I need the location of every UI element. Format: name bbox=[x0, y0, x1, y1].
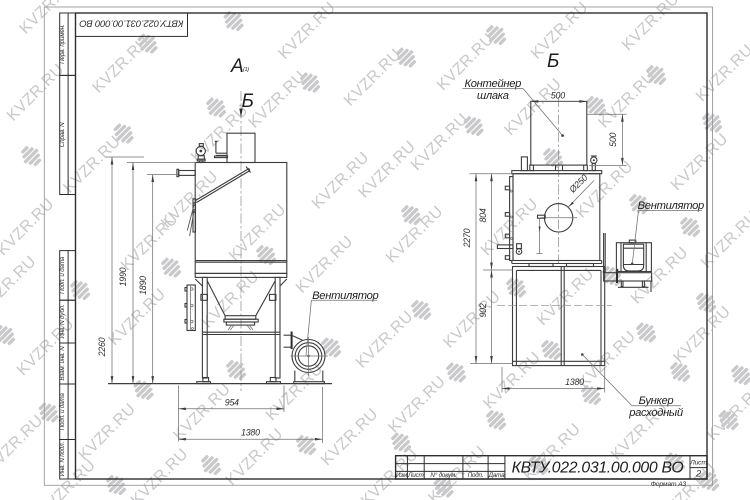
svg-text:N° докум.: N° докум. bbox=[430, 471, 456, 479]
svg-text:500: 500 bbox=[551, 90, 565, 100]
svg-text:902: 902 bbox=[478, 303, 488, 317]
svg-text:804: 804 bbox=[478, 208, 488, 222]
svg-text:2260: 2260 bbox=[97, 337, 107, 357]
svg-text:500: 500 bbox=[608, 132, 618, 146]
svg-text:1380: 1380 bbox=[565, 377, 584, 387]
svg-text:Инв. N подл.: Инв. N подл. bbox=[58, 442, 66, 476]
svg-text:Перв. примен.: Перв. примен. bbox=[59, 25, 66, 64]
svg-text:Лист: Лист bbox=[689, 460, 707, 467]
svg-text:2270: 2270 bbox=[462, 228, 472, 248]
svg-text:шлака: шлака bbox=[477, 90, 509, 102]
svg-text:Дата: Дата bbox=[488, 472, 506, 479]
svg-text:Лист: Лист bbox=[407, 472, 423, 479]
svg-text:2: 2 bbox=[695, 468, 701, 478]
svg-text:(1): (1) bbox=[243, 67, 249, 73]
svg-text:Подп. и дата: Подп. и дата bbox=[58, 256, 66, 294]
svg-text:Бункер: Бункер bbox=[639, 395, 674, 407]
svg-text:Вентилятор: Вентилятор bbox=[638, 200, 704, 212]
svg-text:Контейнер: Контейнер bbox=[464, 78, 521, 90]
svg-text:КВТУ.022.031.00.000 ВО: КВТУ.022.031.00.000 ВО bbox=[79, 18, 184, 29]
svg-text:Изм: Изм bbox=[396, 472, 408, 479]
svg-text:Взам. инв. N: Взам. инв. N bbox=[59, 346, 66, 381]
svg-text:Подп.: Подп. bbox=[468, 471, 484, 479]
svg-text:Инв. N дубл.: Инв. N дубл. bbox=[58, 305, 66, 339]
svg-text:954: 954 bbox=[225, 397, 239, 407]
svg-text:1990: 1990 bbox=[118, 267, 128, 286]
svg-text:Формат А3: Формат А3 bbox=[651, 481, 687, 488]
svg-text:Справ. N: Справ. N bbox=[59, 122, 66, 147]
svg-text:Б: Б bbox=[242, 91, 254, 112]
svg-text:КВТУ.022.031.00.000 ВО: КВТУ.022.031.00.000 ВО bbox=[512, 460, 684, 477]
svg-text:1380: 1380 bbox=[241, 428, 260, 438]
svg-text:1890: 1890 bbox=[138, 276, 148, 295]
svg-text:А: А bbox=[230, 56, 243, 77]
svg-text:Б: Б bbox=[547, 51, 559, 72]
svg-text:Подп. и дата: Подп. и дата bbox=[58, 393, 66, 431]
svg-text:расходный: расходный bbox=[628, 407, 683, 419]
